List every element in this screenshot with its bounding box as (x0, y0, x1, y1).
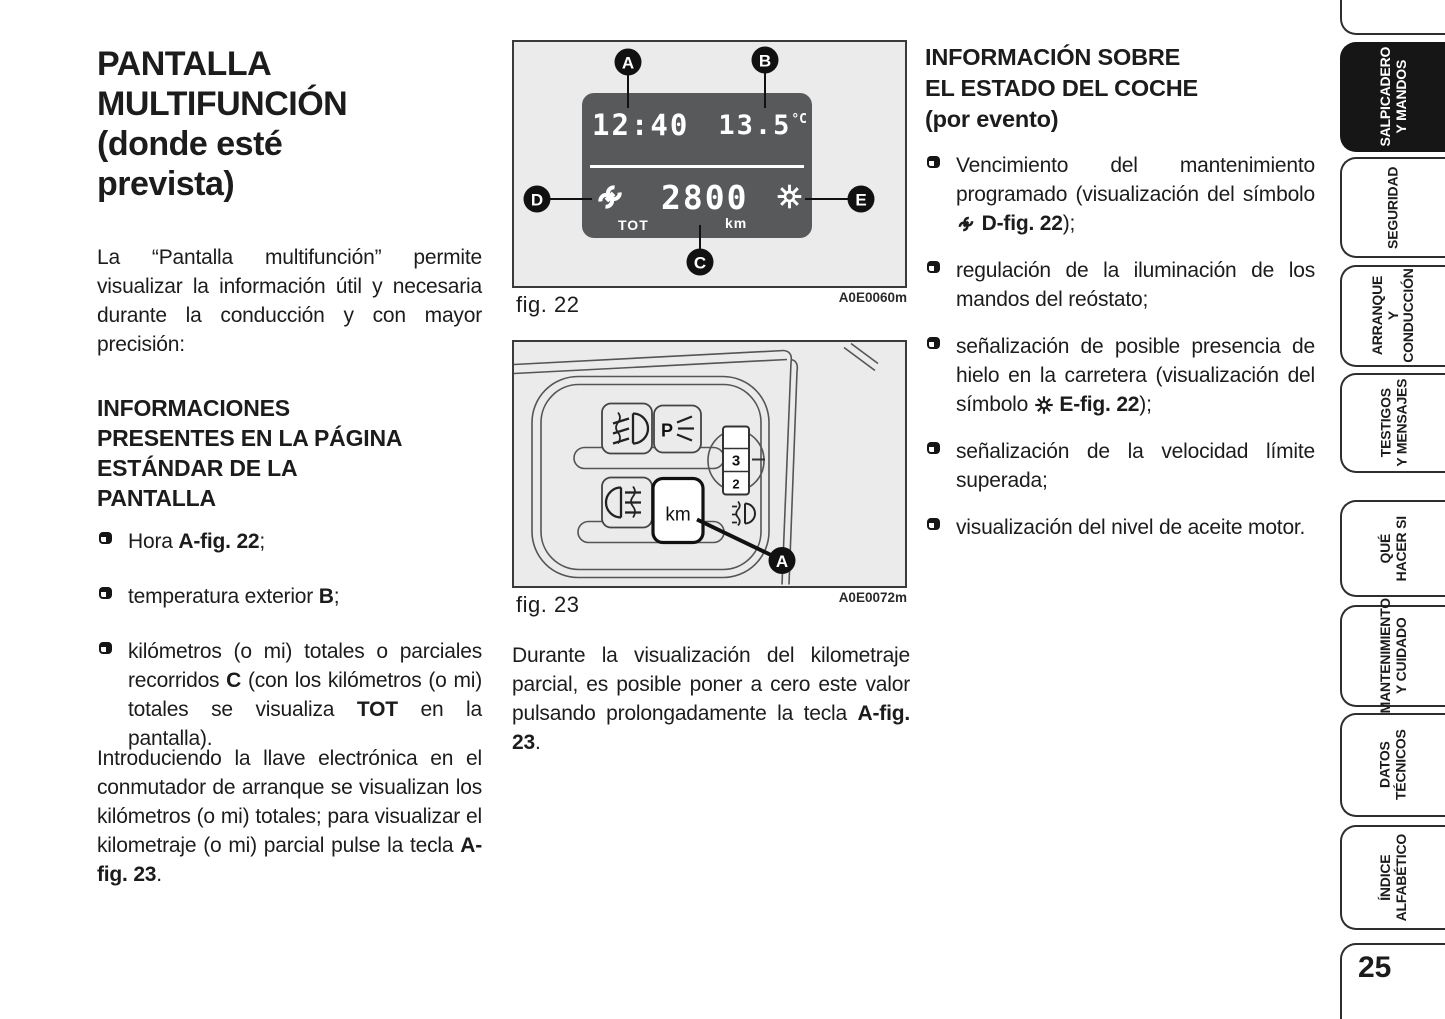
km-button-label: km (665, 505, 690, 526)
svg-text:A: A (776, 552, 788, 571)
callout-c: C (687, 249, 714, 276)
checkbox-bullet-icon (927, 518, 940, 530)
list-item: Vencimiento del mantenimiento programado… (925, 151, 1315, 238)
manual-page: PANTALLA MULTIFUNCIÓN (donde esté previs… (0, 0, 1445, 1019)
page-number: 25 (1358, 951, 1391, 985)
tab-label: SEGURIDAD (1386, 166, 1402, 248)
car-status-bullet-list: Vencimiento del mantenimiento programado… (925, 151, 1315, 542)
page-title: PANTALLA MULTIFUNCIÓN (donde esté previs… (97, 44, 482, 204)
checkbox-bullet-icon (927, 156, 940, 168)
bullet-text: Vencimiento del mantenimiento programado… (956, 151, 1315, 238)
headlight-leveling-icon (732, 502, 755, 526)
checkbox-bullet-icon (99, 642, 112, 654)
tab-mantenimiento-y-cuidado: MANTENIMIENTO Y CUIDADO (1340, 605, 1445, 707)
svg-text:D: D (531, 191, 543, 210)
tab-salpicadero-y-mandos: SALPICADERO Y MANDOS (1340, 42, 1445, 152)
dashboard-contour (514, 344, 878, 585)
tab-label: MANTENIMIENTO Y CUIDADO (1378, 598, 1409, 713)
bullet-text: kilómetros (o mi) totales o parciales re… (128, 637, 482, 753)
svg-text:E: E (855, 191, 866, 210)
svg-text:C: C (694, 254, 706, 273)
dial-number-2: 2 (732, 477, 739, 492)
wrench-icon (956, 214, 976, 234)
bullet-text: señalización de posible presencia de hie… (956, 332, 1315, 419)
tab-indice-alfabetico: ÍNDICE ALFABÉTICO (1340, 825, 1445, 930)
tab-seguridad: SEGURIDAD (1340, 157, 1445, 258)
tab-label: DATOS TÉCNICOS (1378, 730, 1409, 801)
left-column: PANTALLA MULTIFUNCIÓN (donde esté previs… (97, 44, 482, 204)
front-fog-button (602, 404, 652, 454)
bullet-text: visualización del nivel de aceite motor. (956, 513, 1315, 542)
svg-text:A: A (622, 54, 634, 73)
bullet-text: Hora A-fig. 22; (128, 527, 482, 556)
checkbox-bullet-icon (99, 587, 112, 599)
list-item: kilómetros (o mi) totales o parciales re… (97, 637, 482, 753)
page-number-tab: 25 (1340, 943, 1445, 1019)
snowflake-icon (1034, 395, 1054, 415)
bullet-text: regulación de la iluminación de los mand… (956, 256, 1315, 314)
list-item: regulación de la iluminación de los mand… (925, 256, 1315, 314)
figure-22-box: 12:40 13.5°C TOT 2800 km A B C D E (512, 40, 907, 288)
rear-fog-button (602, 478, 652, 528)
list-item: temperatura exterior B; (97, 582, 482, 611)
figure-23-caption: fig. 23 (516, 592, 579, 618)
tab-que-hacer-si: QUÉ HACER SI (1340, 500, 1445, 597)
tab-label: SALPICADERO Y MANDOS (1378, 47, 1409, 147)
checkbox-bullet-icon (927, 442, 940, 454)
section-tab-sidebar: SALPICADERO Y MANDOS SEGURIDAD ARRANQUE … (1340, 0, 1445, 1019)
checkbox-bullet-icon (927, 337, 940, 349)
intro-paragraph: La “Pantalla multifunción” permite visua… (97, 243, 482, 359)
callout-b: B (752, 47, 779, 74)
figure-23-box: 3 2 P (512, 340, 907, 588)
right-column: INFORMACIÓN SOBRE EL ESTADO DEL COCHE (p… (925, 42, 1315, 568)
callout-a: A (769, 547, 796, 574)
figure-23-code: A0E0072m (839, 590, 907, 605)
section-heading: INFORMACIONES PRESENTES EN LA PÁGINA EST… (97, 393, 482, 513)
callout-d: D (524, 186, 551, 213)
svg-text:B: B (759, 52, 771, 71)
list-item: señalización de posible presencia de hie… (925, 332, 1315, 419)
callout-a: A (615, 49, 642, 76)
figure-23-illustration: 3 2 P (514, 342, 905, 586)
bullet-text: señalización de la velocidad límite supe… (956, 437, 1315, 495)
bullet-text: temperatura exterior B; (128, 582, 482, 611)
list-item: visualización del nivel de aceite motor. (925, 513, 1315, 542)
callout-e: E (848, 186, 875, 213)
tab-testigos-y-mensajes: TESTIGOS Y MENSAJES (1340, 373, 1445, 473)
tab-label: TESTIGOS Y MENSAJES (1378, 379, 1409, 467)
km-button: km (653, 479, 703, 543)
figure-23: 3 2 P (512, 340, 907, 588)
dial-number-3: 3 (732, 453, 740, 470)
closing-paragraph: Introduciendo la llave electrónica en el… (97, 744, 482, 889)
list-item: Hora A-fig. 22; (97, 527, 482, 556)
checkbox-bullet-icon (927, 261, 940, 273)
tab-label: ARRANQUE Y CONDUCCIÓN (1370, 264, 1417, 367)
position-light-letter: P (661, 421, 673, 441)
figure-22: 12:40 13.5°C TOT 2800 km A B C D E (512, 40, 907, 288)
figure-22-callouts: A B C D E (514, 42, 905, 286)
partial-odometer-paragraph: Durante la visualización del kilometraje… (512, 641, 910, 757)
figure-22-code: A0E0060m (839, 290, 907, 305)
checkbox-bullet-icon (99, 532, 112, 544)
tab-arranque-y-conduccion: ARRANQUE Y CONDUCCIÓN (1340, 265, 1445, 367)
light-dial: 3 2 (708, 427, 765, 495)
figure-22-caption: fig. 22 (516, 292, 579, 318)
position-light-button: P (654, 406, 701, 453)
tab-label: QUÉ HACER SI (1378, 516, 1409, 581)
tab-partial-top (1340, 0, 1445, 35)
tab-label: ÍNDICE ALFABÉTICO (1378, 834, 1409, 921)
standard-page-bullet-list: Hora A-fig. 22; temperatura exterior B; … (97, 527, 482, 779)
car-status-heading: INFORMACIÓN SOBRE EL ESTADO DEL COCHE (p… (925, 42, 1315, 135)
tab-datos-tecnicos: DATOS TÉCNICOS (1340, 713, 1445, 817)
list-item: señalización de la velocidad límite supe… (925, 437, 1315, 495)
